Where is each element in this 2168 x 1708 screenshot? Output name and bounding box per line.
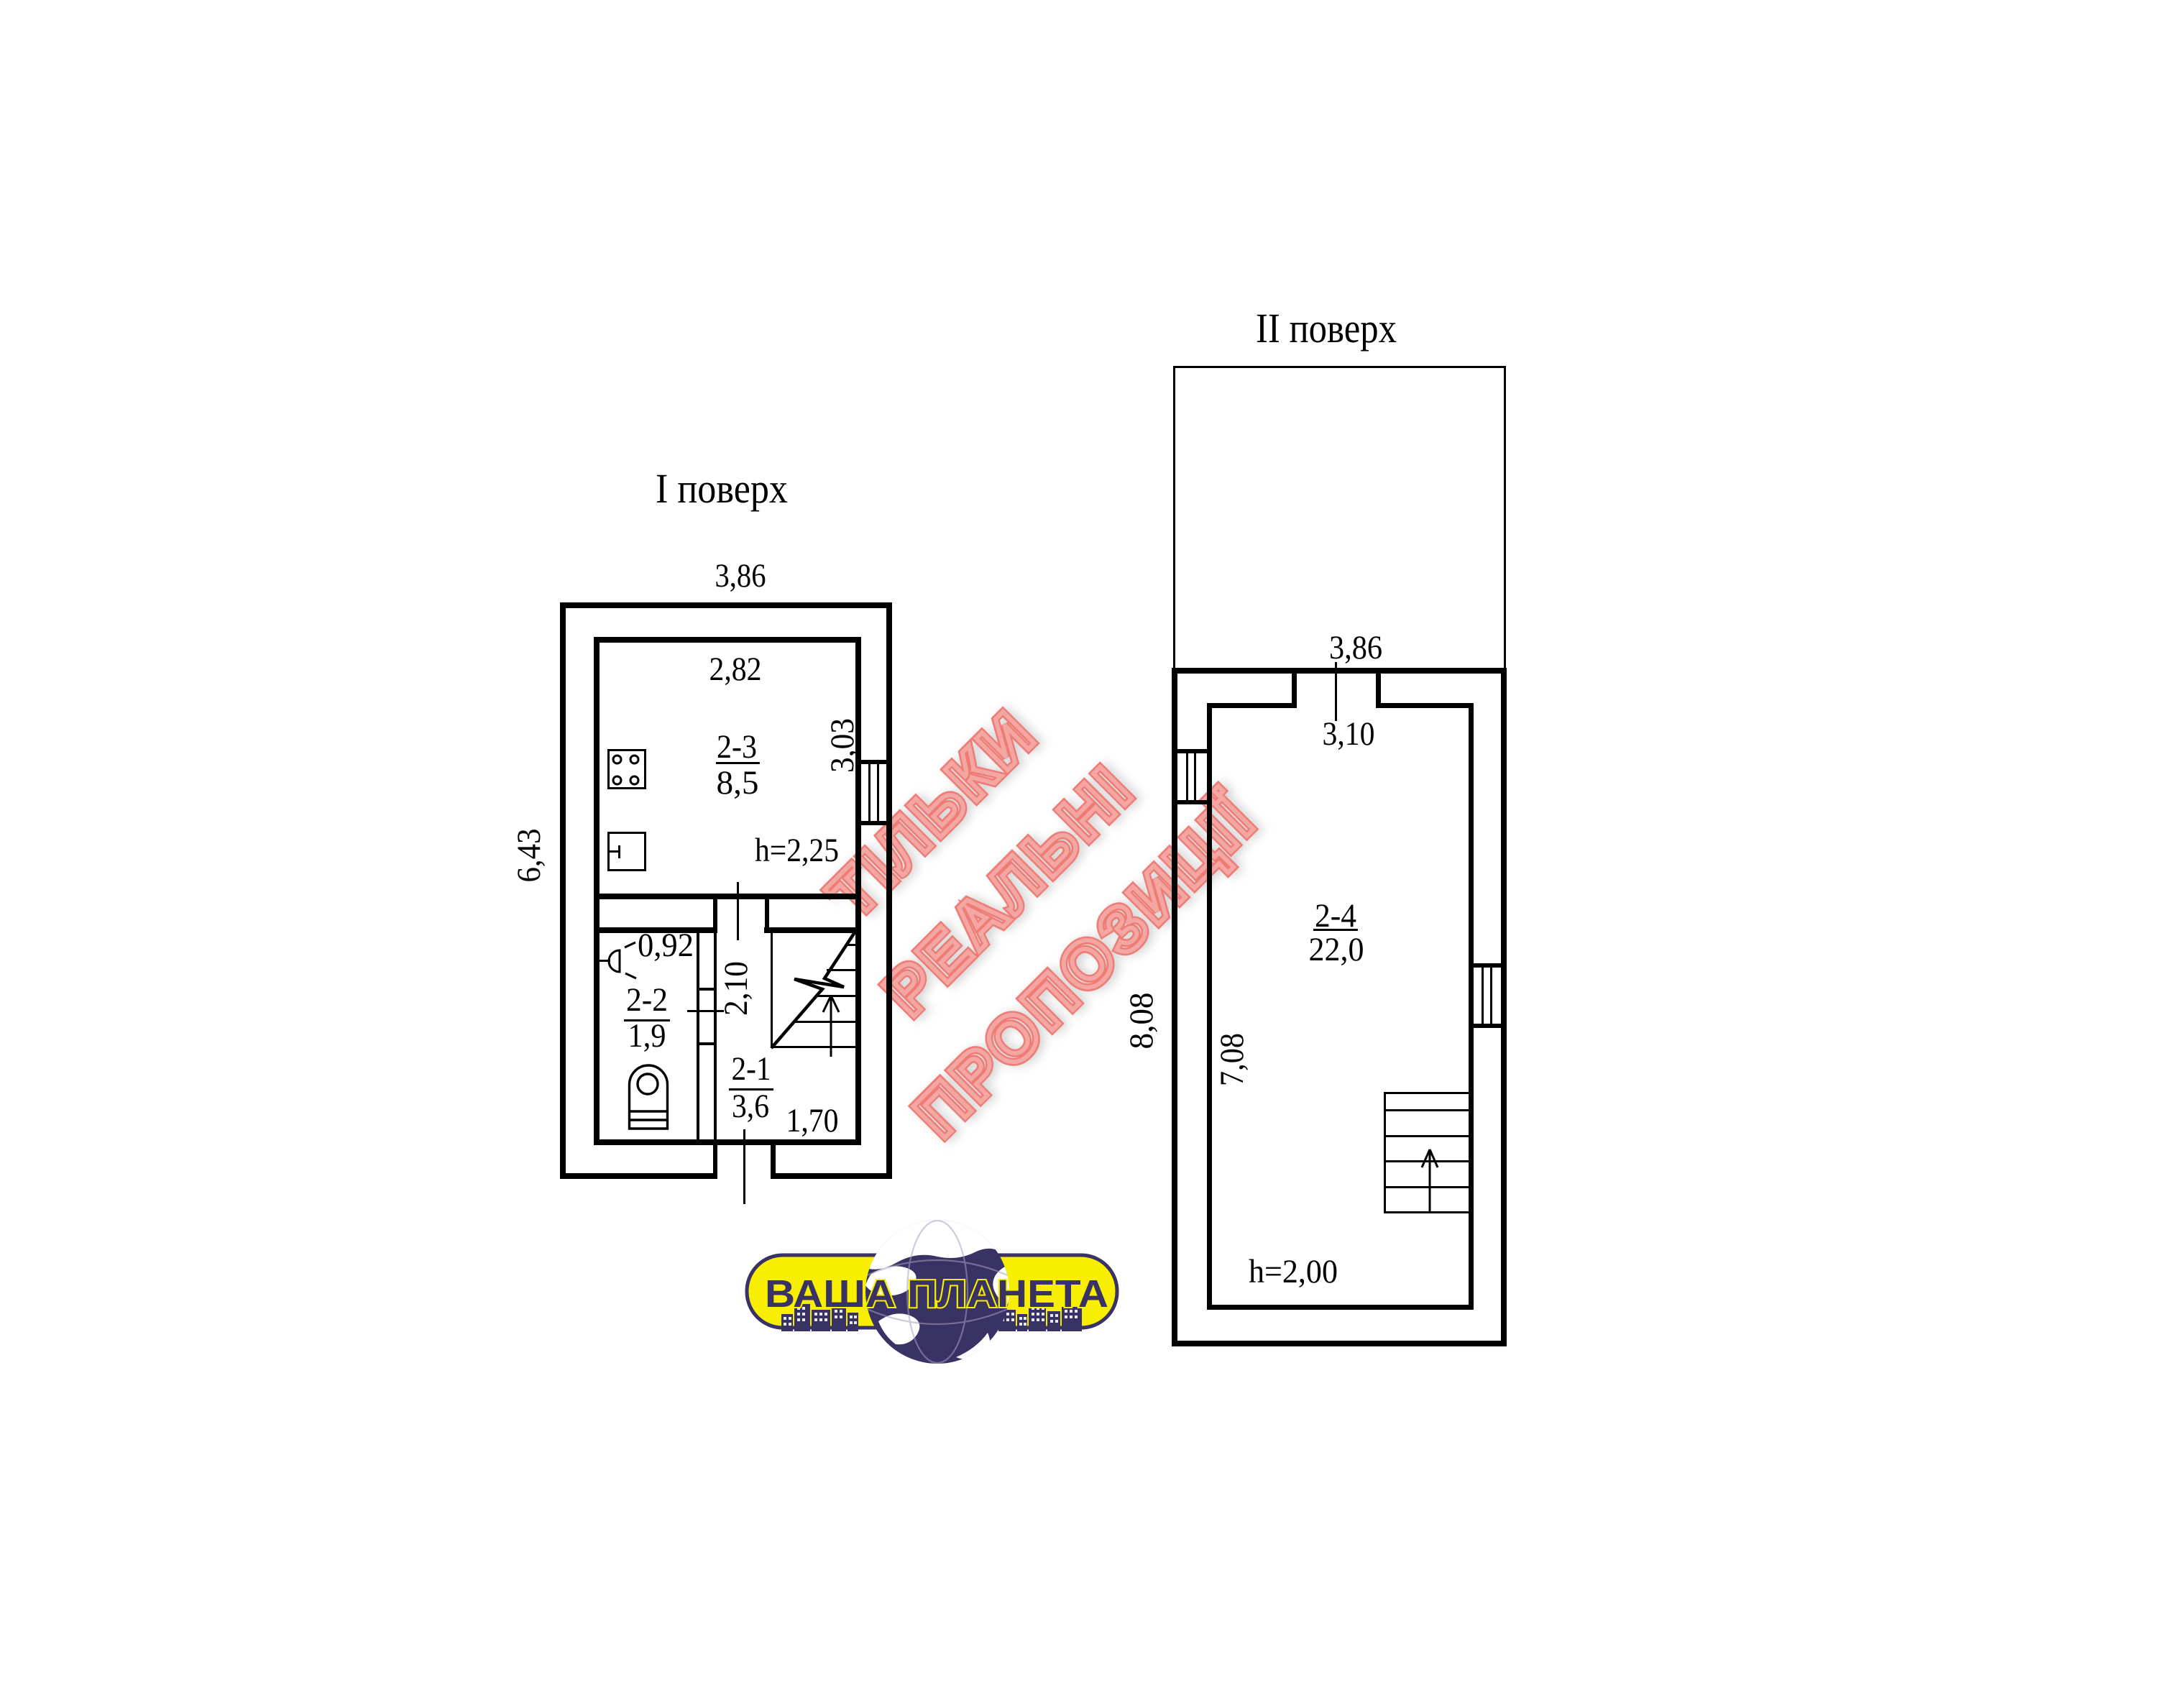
svg-text:8,08: 8,08 — [1123, 993, 1160, 1050]
svg-text:ВАША ПЛАНЕТА: ВАША ПЛАНЕТА — [765, 1272, 1108, 1316]
svg-text:2,10: 2,10 — [717, 961, 755, 1016]
svg-text:1,9: 1,9 — [628, 1017, 666, 1055]
svg-text:3,6: 3,6 — [732, 1088, 769, 1125]
svg-text:2,82: 2,82 — [709, 651, 762, 688]
svg-text:6,43: 6,43 — [510, 829, 548, 883]
svg-text:1,70: 1,70 — [786, 1102, 839, 1139]
svg-text:2-3: 2-3 — [717, 728, 757, 766]
svg-text:3,10: 3,10 — [1323, 715, 1375, 753]
svg-text:8,5: 8,5 — [717, 764, 759, 802]
svg-text:h=2,00: h=2,00 — [1249, 1253, 1338, 1290]
svg-text:3,03: 3,03 — [824, 718, 861, 773]
svg-text:0,92: 0,92 — [638, 927, 694, 964]
svg-text:7,08: 7,08 — [1213, 1033, 1251, 1086]
svg-text:2-1: 2-1 — [732, 1050, 771, 1088]
svg-text:2-2: 2-2 — [626, 981, 668, 1019]
svg-text:22,0: 22,0 — [1309, 931, 1364, 968]
svg-text:ІІ поверх: ІІ поверх — [1256, 305, 1397, 352]
svg-text:3,86: 3,86 — [715, 557, 766, 594]
svg-text:h=2,25: h=2,25 — [755, 832, 839, 869]
svg-text:І поверх: І поверх — [656, 465, 788, 512]
svg-text:3,86: 3,86 — [1329, 629, 1382, 666]
